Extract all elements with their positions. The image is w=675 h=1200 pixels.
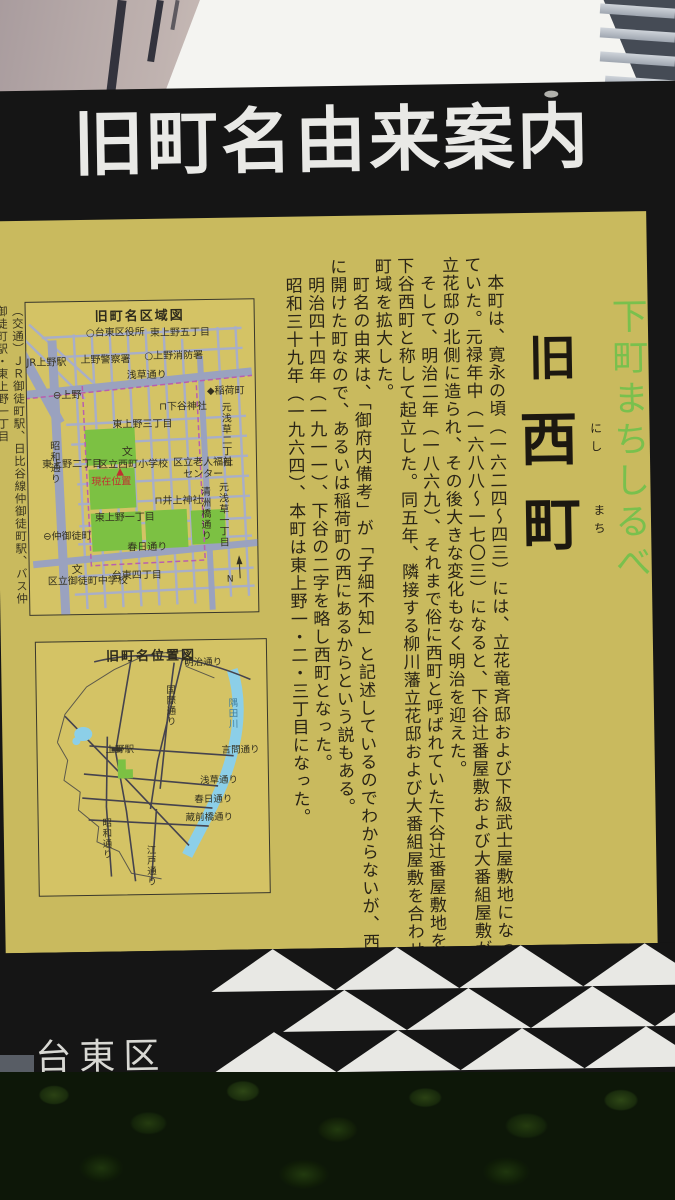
map-label: 春日通り (127, 543, 167, 554)
map-label: 東上野一丁目 (95, 513, 155, 524)
map-label: 上野警察署 (80, 355, 130, 366)
metro-station-icon: ◆稲荷町 (207, 386, 245, 397)
map-label: 言問通り (221, 745, 259, 755)
map-label: 明治通り (184, 658, 222, 668)
map-label: 春日通り (194, 795, 232, 805)
map-label: ○台東区役所 (86, 328, 145, 339)
sign-title: 旧町名由来案内 (0, 97, 675, 186)
map-label: 区立老人福祉 (173, 458, 233, 469)
sign-board: 旧町名由来案内 （交通）ＪＲ御徒町駅、日比谷線仲御徒町駅、バス仲御徒町駅・東上野… (0, 81, 675, 1094)
compass-north: N (227, 576, 234, 585)
map-label: ○上野消防署 (144, 351, 203, 362)
map-label: センター (183, 470, 223, 481)
sign-footer: 台東区 (0, 943, 675, 1094)
map-label: 東上野三丁目 (112, 420, 172, 431)
area-map: 旧町名区域図 ○台東区役所東上野五丁目上野警察署○上野消防署JR上野駅浅草通り⊖… (25, 299, 258, 615)
map-label: 昭和通り (101, 818, 111, 860)
location-map: 旧町名位置図 明治通り国際通り隅田川言問通り上野駅浅草通り春日通り蔵前橋通り昭和… (36, 639, 270, 896)
body-text: 本町は、寛永の頃（一六二四～四三）には、立花竜斉邸および下級武士屋敷地になってい… (278, 255, 515, 962)
sign-header: 旧町名由来案内 (0, 81, 675, 222)
tagline: 下町まちしるべ (599, 297, 656, 608)
map-label: 江戸通り (145, 845, 155, 887)
shrine-icon: ⊓下谷神社 (159, 402, 207, 413)
paragraph: 本町は、寛永の頃（一六二四～四三）には、立花竜斉邸および下級武士屋敷地になってい… (437, 255, 515, 960)
map-label: 浅草通り (127, 371, 167, 382)
old-name-prefix: 旧 (528, 334, 577, 383)
window-slit (147, 0, 164, 62)
school-icon: 文 (122, 446, 133, 457)
paragraph: そして、明治二年（一八六九）、それまで俗に西町と呼ばれていた下谷辻番屋敷地を下谷… (369, 256, 447, 961)
map-label: 清洲橋通り (198, 486, 209, 541)
map-label: 区立西町小学校 (98, 460, 168, 471)
map-label: 隅田川 (227, 698, 237, 730)
window-slit (170, 0, 179, 30)
map-label: 区立御徒町中学校 (48, 576, 128, 587)
old-name-char2: 町 (523, 495, 582, 554)
map-label: 東上野二丁目 (42, 460, 102, 471)
map-label: JR上野駅 (26, 358, 66, 369)
location-map-labels: 明治通り国際通り隅田川言問通り上野駅浅草通り春日通り蔵前橋通り昭和通り江戸通り (36, 639, 270, 896)
map-label: 蔵前橋通り (186, 813, 234, 823)
window-slit (106, 0, 126, 92)
triangle-pattern (211, 943, 675, 1076)
map-label: 東上野五丁目 (150, 328, 210, 339)
old-name-char1: 西 (519, 410, 578, 469)
hedge (0, 1072, 675, 1200)
map-label: 上野駅 (105, 745, 134, 755)
current-location-label: 現在位置 (91, 477, 131, 488)
map-label: 国際通り (165, 685, 175, 727)
map-label: 元浅草一丁目 (216, 482, 227, 548)
metro-station-icon: ⊖上野 (53, 391, 82, 401)
area-map-labels: ○台東区役所東上野五丁目上野警察署○上野消防署JR上野駅浅草通り⊖上野◆稲荷町⊓… (25, 299, 258, 615)
school-icon: 文 (72, 564, 83, 575)
metro-station-icon: ⊖仲御徒町 (43, 532, 92, 543)
shrine-icon: ⊓井上神社 (155, 496, 203, 507)
map-label: 浅草通り (200, 776, 238, 786)
